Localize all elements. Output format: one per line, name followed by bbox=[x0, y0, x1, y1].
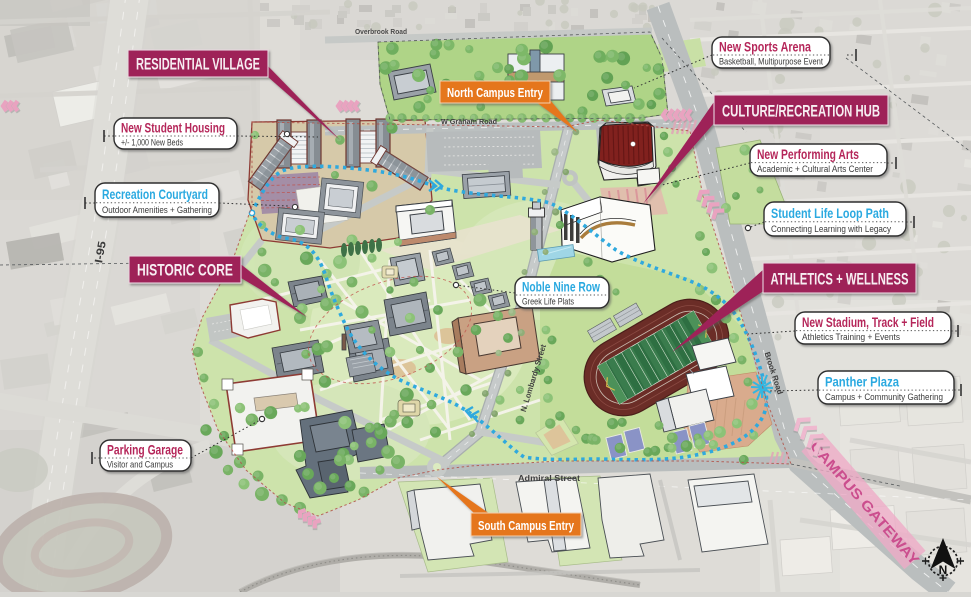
svg-text:RESIDENTIAL VILLAGE: RESIDENTIAL VILLAGE bbox=[136, 55, 260, 73]
svg-text:North Campus Entry: North Campus Entry bbox=[447, 86, 543, 100]
svg-text:+/- 1,000 New Beds: +/- 1,000 New Beds bbox=[121, 137, 183, 147]
svg-text:Admiral Street: Admiral Street bbox=[518, 473, 580, 483]
svg-text:New Student Housing: New Student Housing bbox=[121, 120, 225, 136]
svg-text:South Campus Entry: South Campus Entry bbox=[478, 519, 574, 533]
svg-text:HISTORIC CORE: HISTORIC CORE bbox=[137, 261, 233, 279]
svg-text:Basketball, Multipurpose Event: Basketball, Multipurpose Event bbox=[719, 56, 823, 66]
svg-text:Visitor and Campus: Visitor and Campus bbox=[107, 459, 173, 469]
svg-text:ATHLETICS + WELLNESS: ATHLETICS + WELLNESS bbox=[771, 270, 909, 289]
svg-text:New Stadium, Track + Field: New Stadium, Track + Field bbox=[802, 314, 934, 330]
svg-text:Parking Garage: Parking Garage bbox=[107, 442, 183, 458]
svg-text:Academic + Cultural Arts Cente: Academic + Cultural Arts Center bbox=[757, 164, 873, 174]
svg-text:Recreation Courtyard: Recreation Courtyard bbox=[102, 186, 208, 202]
svg-text:W Graham Road: W Graham Road bbox=[441, 117, 497, 126]
svg-text:Campus + Community Gathering: Campus + Community Gathering bbox=[825, 392, 943, 402]
svg-text:Student Life Loop Path: Student Life Loop Path bbox=[771, 205, 889, 221]
svg-text:Panther Plaza: Panther Plaza bbox=[825, 374, 899, 390]
svg-text:Overbrook Road: Overbrook Road bbox=[355, 27, 407, 36]
svg-text:New Performing Arts: New Performing Arts bbox=[757, 146, 859, 162]
svg-text:New Sports Arena: New Sports Arena bbox=[719, 39, 811, 55]
svg-text:Greek Life Plats: Greek Life Plats bbox=[522, 296, 574, 306]
svg-text:Connecting Learning with Legac: Connecting Learning with Legacy bbox=[771, 224, 891, 234]
svg-text:N: N bbox=[939, 563, 948, 577]
svg-text:Athletics Training + Events: Athletics Training + Events bbox=[802, 332, 900, 342]
svg-text:Outdoor Amenities + Gathering: Outdoor Amenities + Gathering bbox=[102, 205, 212, 215]
svg-text:Noble Nine Row: Noble Nine Row bbox=[522, 279, 600, 295]
svg-text:CULTURE/RECREATION HUB: CULTURE/RECREATION HUB bbox=[722, 102, 880, 121]
